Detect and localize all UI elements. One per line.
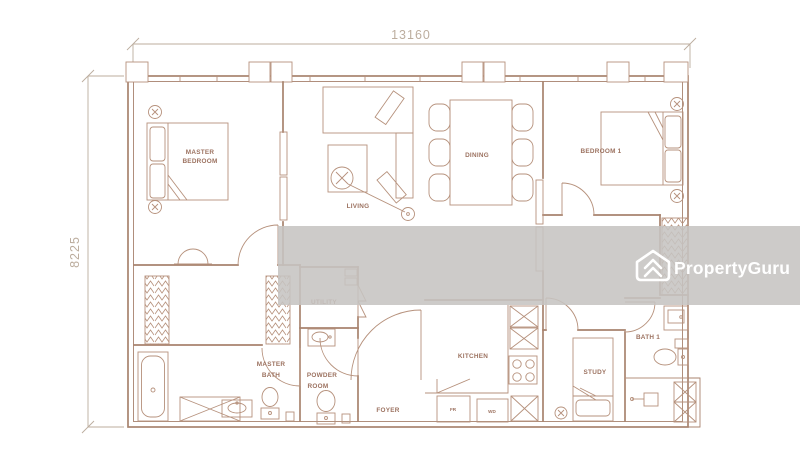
room-dining: DINING <box>429 100 533 205</box>
room-living: LIVING <box>323 87 415 221</box>
dining-chair <box>512 174 533 201</box>
appliance-label-fridge: FR <box>450 407 457 412</box>
floor-lamp-icon <box>331 167 415 221</box>
room-foyer: FOYER <box>376 407 399 414</box>
ceiling-light-icon <box>555 407 567 419</box>
room-kitchen: FR WD KITCHEN <box>425 305 538 422</box>
dining-chair <box>512 104 533 131</box>
sofa-chaise <box>396 133 413 198</box>
watermark-brand: PropertyGuru <box>674 258 790 278</box>
room-study: STUDY <box>555 338 613 421</box>
ceiling-light-icon <box>149 106 162 119</box>
pillow <box>665 150 681 182</box>
room-label-master-bath-2: BATH <box>262 372 280 379</box>
counter-flip <box>437 379 470 393</box>
shower <box>631 393 659 406</box>
powder-room-door <box>320 338 358 376</box>
walk-in-closet <box>145 276 290 344</box>
sink <box>664 306 688 330</box>
sliding-panel <box>280 177 287 220</box>
entry-foyer-door <box>351 310 421 380</box>
kitchen-sink <box>511 396 538 421</box>
watermark: PropertyGuru <box>278 226 800 305</box>
room-label-study: STUDY <box>584 369 607 376</box>
facade-columns <box>126 62 688 82</box>
room-label-master-bedroom-1: MASTER <box>186 149 215 156</box>
cistern <box>675 339 688 348</box>
ceiling-light-icon <box>149 201 162 214</box>
room-label-master-bath-1: MASTER <box>257 361 286 368</box>
toilet <box>261 388 279 420</box>
pillow <box>665 116 681 148</box>
bedroom1-door <box>562 183 594 215</box>
wardrobe <box>145 276 169 344</box>
dimension-top-label: 13160 <box>391 28 431 42</box>
floor-plan-image: 13160 8225 <box>0 0 800 456</box>
ceiling-light-icon <box>671 98 684 111</box>
toilet <box>317 391 335 425</box>
washer-dryer: WD <box>477 399 508 422</box>
master-bedroom-door <box>238 225 278 265</box>
double-sink <box>510 306 538 349</box>
room-bath1: BATH 1 <box>631 306 697 422</box>
dimension-left: 8225 <box>68 70 124 433</box>
pillow <box>576 400 610 416</box>
appliance-label-washer: WD <box>488 409 496 414</box>
single-bed <box>573 338 613 421</box>
drain <box>151 388 155 392</box>
room-label-master-bedroom-2: BEDROOM <box>182 158 217 165</box>
room-label-powder-2: ROOM <box>308 383 329 390</box>
ceiling-light-icon <box>671 190 684 203</box>
dimension-left-label: 8225 <box>68 236 82 268</box>
closet-arch <box>174 249 212 264</box>
sink <box>308 329 335 346</box>
dining-chair <box>429 174 450 201</box>
cushion <box>375 91 404 125</box>
sliding-panel <box>536 180 543 224</box>
bathtub <box>138 352 168 421</box>
cushion <box>377 172 406 203</box>
pillow <box>150 164 165 198</box>
ac-ledge <box>674 382 696 422</box>
fridge: FR <box>437 396 470 422</box>
dining-chair <box>429 139 450 166</box>
room-label-living: LIVING <box>347 203 370 210</box>
pillow <box>150 127 165 161</box>
room-label-foyer: FOYER <box>376 407 399 414</box>
floor-trap <box>286 412 294 421</box>
room-label-dining: DINING <box>465 152 489 159</box>
room-label-bath1: BATH 1 <box>636 334 660 341</box>
stove <box>509 356 537 384</box>
sliding-panel <box>280 132 287 175</box>
room-master-bedroom: MASTER BEDROOM <box>147 106 287 221</box>
room-label-powder-1: POWDER <box>307 372 337 379</box>
room-label-bedroom1: BEDROOM 1 <box>581 148 622 155</box>
room-master-bath: MASTER BATH <box>138 352 294 421</box>
room-powder: POWDER ROOM <box>307 329 350 424</box>
room-label-kitchen: KITCHEN <box>458 353 488 360</box>
sofa <box>323 87 413 133</box>
bath1-door <box>625 302 655 332</box>
dining-chair <box>429 104 450 131</box>
dining-chair <box>512 139 533 166</box>
